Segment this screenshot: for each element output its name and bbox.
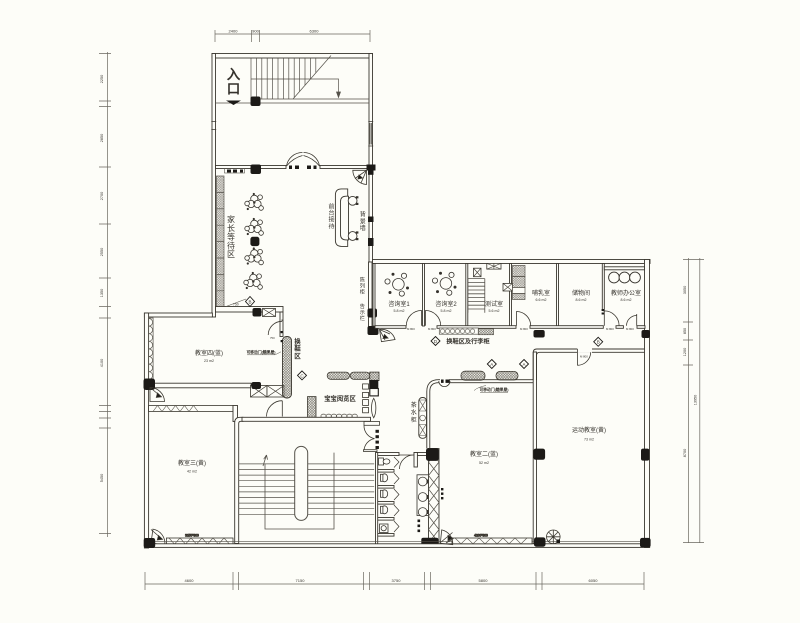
svg-text:4200*800: 4200*800 bbox=[474, 533, 488, 537]
svg-text:2250: 2250 bbox=[100, 75, 104, 83]
svg-text:可移动门(糖果屋): 可移动门(糖果屋) bbox=[246, 350, 276, 355]
svg-text:900: 900 bbox=[252, 29, 259, 34]
svg-text:42 m2: 42 m2 bbox=[187, 470, 197, 474]
svg-text:告示栏: 告示栏 bbox=[360, 302, 365, 322]
svg-text:3750: 3750 bbox=[392, 578, 402, 583]
svg-text:陈列柜: 陈列柜 bbox=[360, 276, 365, 296]
svg-text:750: 750 bbox=[270, 336, 275, 340]
svg-text:茶水柜: 茶水柜 bbox=[411, 401, 417, 424]
svg-text:M 800: M 800 bbox=[407, 327, 415, 331]
svg-text:4100: 4100 bbox=[100, 359, 104, 367]
svg-text:M 800: M 800 bbox=[428, 327, 436, 331]
svg-text:A: A bbox=[490, 362, 493, 367]
svg-text:M 800: M 800 bbox=[520, 327, 528, 331]
svg-text:1350: 1350 bbox=[100, 289, 104, 297]
svg-text:教室四(蓝): 教室四(蓝) bbox=[195, 349, 223, 357]
svg-text:3050: 3050 bbox=[683, 286, 687, 294]
svg-text:13950: 13950 bbox=[694, 395, 698, 406]
svg-text:8.6 m2: 8.6 m2 bbox=[621, 298, 632, 302]
svg-text:换鞋区: 换鞋区 bbox=[294, 337, 301, 360]
svg-text:咨询室1: 咨询室1 bbox=[388, 300, 410, 308]
svg-text:B: B bbox=[597, 340, 600, 345]
svg-text:储物间: 储物间 bbox=[572, 289, 590, 297]
svg-text:5.8 m2: 5.8 m2 bbox=[441, 309, 452, 313]
svg-text:5800: 5800 bbox=[479, 578, 489, 583]
svg-text:850: 850 bbox=[683, 328, 687, 334]
svg-text:换鞋区及行李柜: 换鞋区及行李柜 bbox=[446, 338, 490, 346]
svg-text:咨询室2: 咨询室2 bbox=[435, 300, 457, 308]
svg-text:1200: 1200 bbox=[683, 348, 687, 356]
svg-text:2400: 2400 bbox=[229, 29, 239, 34]
svg-text:教室二(蓝): 教室二(蓝) bbox=[470, 450, 498, 458]
svg-text:2850: 2850 bbox=[100, 134, 104, 142]
svg-text:73 m2: 73 m2 bbox=[584, 438, 594, 442]
svg-text:7150: 7150 bbox=[296, 578, 306, 583]
svg-text:家长等待区: 家长等待区 bbox=[227, 214, 235, 259]
svg-text:哺乳室: 哺乳室 bbox=[532, 289, 550, 297]
svg-text:5.8 m2: 5.8 m2 bbox=[394, 309, 405, 313]
svg-text:测试室: 测试室 bbox=[485, 300, 503, 308]
svg-text:运动教室(黄): 运动教室(黄) bbox=[572, 426, 606, 434]
svg-text:可移动门(糖果屋): 可移动门(糖果屋) bbox=[479, 387, 509, 392]
svg-text:入口: 入口 bbox=[227, 67, 241, 97]
svg-text:背景墙: 背景墙 bbox=[360, 211, 366, 233]
svg-text:8700: 8700 bbox=[683, 449, 687, 457]
svg-text:5.6 m2: 5.6 m2 bbox=[489, 309, 500, 313]
svg-text:A: A bbox=[522, 362, 525, 367]
svg-text:23 m2: 23 m2 bbox=[204, 359, 214, 363]
svg-text:6300: 6300 bbox=[310, 29, 320, 34]
svg-text:4600: 4600 bbox=[185, 578, 195, 583]
svg-text:5450: 5450 bbox=[100, 474, 104, 482]
svg-text:6050: 6050 bbox=[589, 578, 599, 583]
svg-text:M 800: M 800 bbox=[580, 355, 588, 359]
svg-text:2700: 2700 bbox=[100, 192, 104, 200]
svg-text:8.6 m2: 8.6 m2 bbox=[576, 298, 587, 302]
svg-text:教室三(黄): 教室三(黄) bbox=[178, 459, 206, 467]
svg-text:教师办公室: 教师办公室 bbox=[611, 289, 641, 297]
svg-text:宝宝阅览区: 宝宝阅览区 bbox=[324, 394, 356, 403]
svg-text:3150*800: 3150*800 bbox=[185, 534, 199, 538]
svg-text:前台接待: 前台接待 bbox=[328, 203, 334, 231]
svg-text:B: B bbox=[248, 300, 251, 305]
svg-text:52 m2: 52 m2 bbox=[479, 461, 489, 465]
svg-text:2550: 2550 bbox=[100, 248, 104, 256]
svg-text:M 800: M 800 bbox=[606, 327, 614, 331]
svg-text:6.6 m2: 6.6 m2 bbox=[536, 298, 547, 302]
svg-text:M 800: M 800 bbox=[626, 327, 634, 331]
